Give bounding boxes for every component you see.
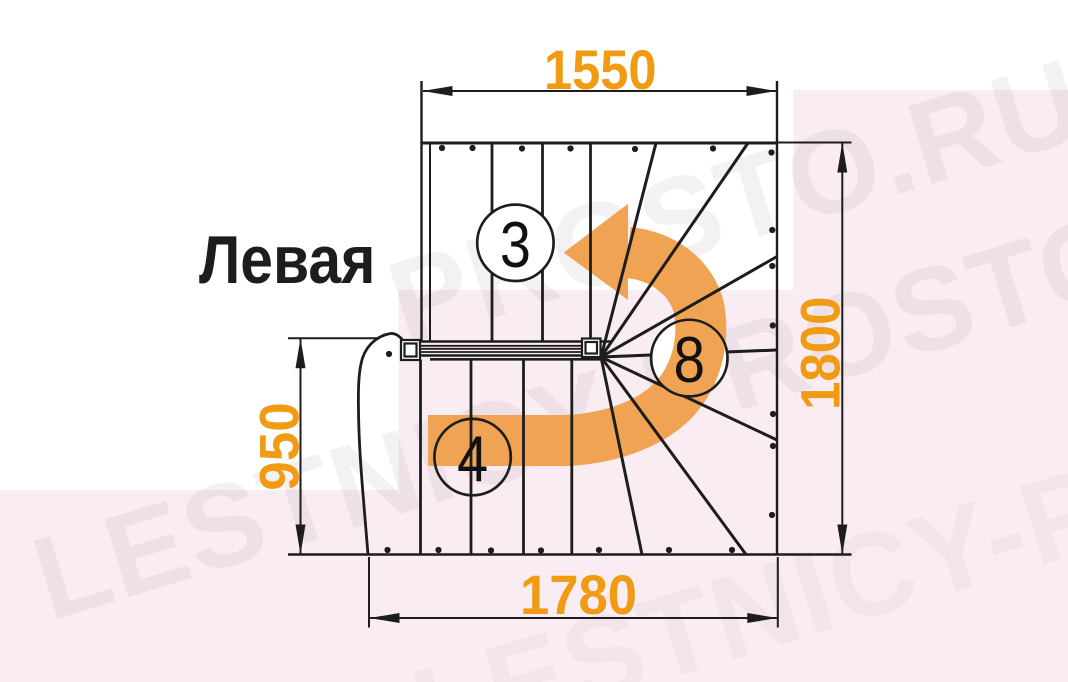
svg-text:3: 3: [500, 208, 531, 281]
svg-text:8: 8: [674, 323, 706, 396]
svg-text:950: 950: [248, 402, 311, 491]
svg-text:1550: 1550: [544, 38, 657, 101]
svg-text:1780: 1780: [520, 563, 637, 626]
svg-text:Левая: Левая: [199, 222, 376, 298]
svg-text:4: 4: [457, 422, 488, 495]
svg-text:1800: 1800: [789, 297, 852, 411]
